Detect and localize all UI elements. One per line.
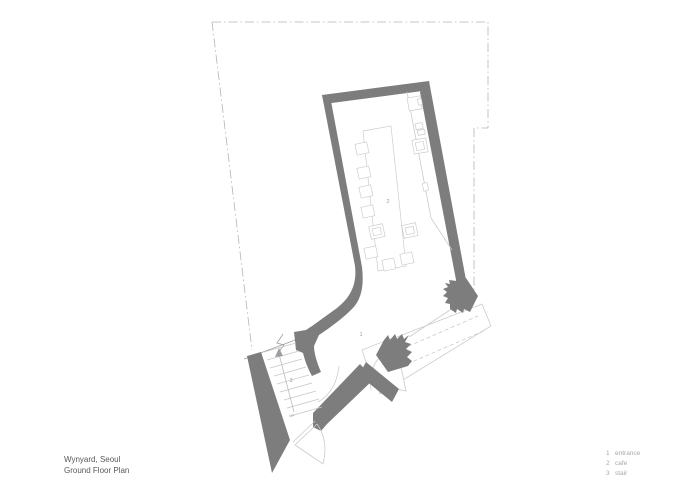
label-up: UP [289, 414, 295, 418]
chair [359, 185, 373, 198]
floor-plan-canvas: 1 2 3 UP [0, 0, 700, 495]
drawing-title: Ground Floor Plan [64, 466, 129, 477]
label-entrance: 1 [359, 332, 362, 338]
legend-item-stair: 3 stair [606, 469, 640, 479]
chair [382, 258, 396, 271]
label-stair: 3 [289, 378, 292, 384]
espresso-machine [407, 96, 423, 111]
stair-walls [247, 352, 290, 473]
legend-label: entrance [615, 449, 640, 459]
armchair [402, 223, 418, 239]
chair [400, 252, 414, 265]
armchair [369, 224, 385, 240]
grinder [415, 122, 425, 135]
legend-label: stair [615, 469, 627, 479]
floor-plan-page: 1 2 3 UP Wynyard, Seoul Ground Floor Pla… [0, 0, 700, 495]
legend-label: cafe [615, 459, 627, 469]
legend-item-entrance: 1 entrance [606, 449, 640, 459]
chair [355, 142, 369, 155]
project-title: Wynyard, Seoul [64, 455, 129, 466]
stair-up-arrow-icon [275, 348, 283, 357]
legend-item-cafe: 2 cafe [606, 459, 640, 469]
label-cafe: 2 [386, 199, 389, 205]
title-block: Wynyard, Seoul Ground Floor Plan [64, 455, 129, 476]
chair [364, 246, 378, 259]
chair [361, 205, 375, 218]
legend-number: 1 [606, 449, 615, 459]
legend-number: 2 [606, 459, 615, 469]
legend-number: 3 [606, 469, 615, 479]
legend: 1 entrance 2 cafe 3 stair [606, 449, 640, 479]
chair [357, 166, 371, 179]
brewer [412, 138, 428, 154]
cup [422, 183, 428, 192]
